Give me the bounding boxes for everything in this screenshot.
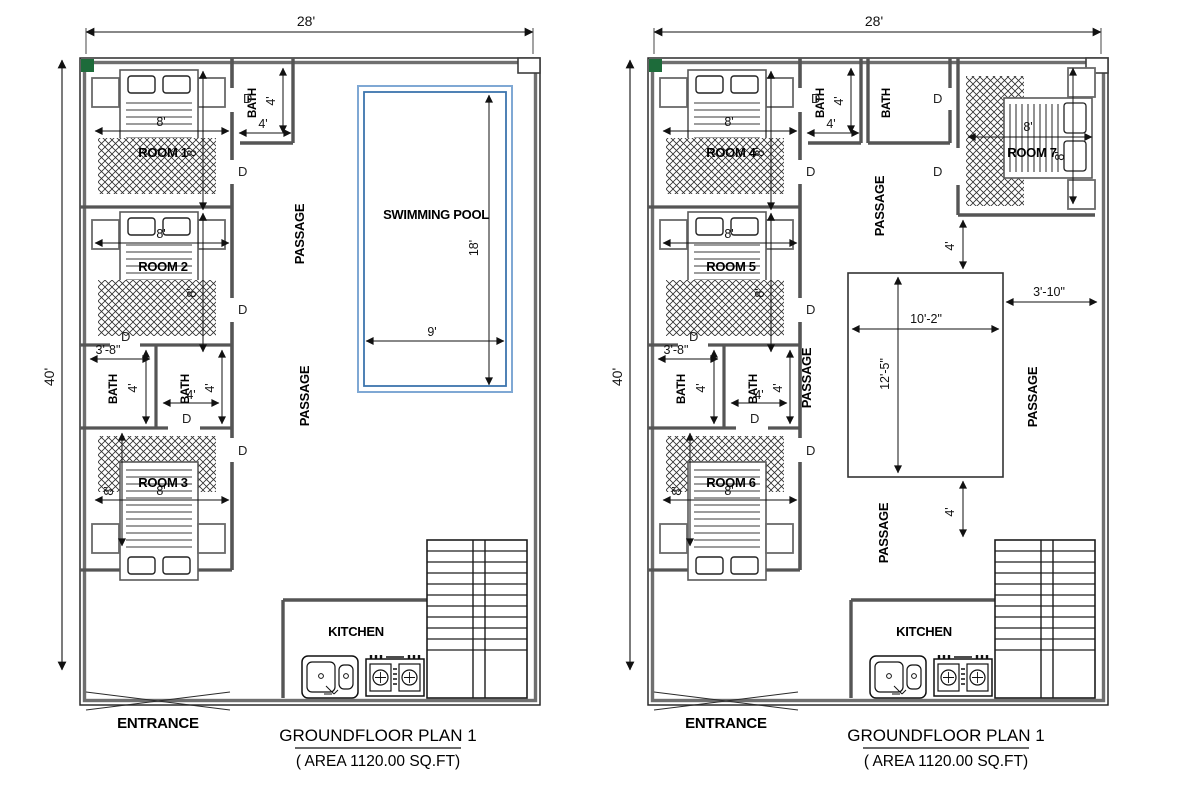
room-label: ROOM 5 xyxy=(706,259,756,274)
court-height-dim: 12'-5" xyxy=(878,358,892,390)
courtyard: 10'-2" 12'-5" 4' 4' 3'-10" xyxy=(848,220,1097,537)
passage-label: PASSAGE xyxy=(1025,366,1040,427)
pool-width-dim: 9' xyxy=(427,325,436,339)
plan-title: GROUNDFLOOR PLAN 1 xyxy=(847,726,1044,745)
pool-label: SWIMMING POOL xyxy=(383,207,489,222)
plan-area: ( AREA 1120.00 SQ.FT) xyxy=(296,753,460,770)
passage-label: PASSAGE xyxy=(876,502,891,563)
gap-dim: 4' xyxy=(943,241,957,250)
room-label: ROOM 6 xyxy=(706,475,756,490)
pool-length-dim: 18' xyxy=(467,240,481,256)
title-block: GROUNDFLOOR PLAN 1 ( AREA 1120.00 SQ.FT) xyxy=(279,726,476,770)
side-offset-dim: 3'-10" xyxy=(1033,285,1065,299)
door-label: D xyxy=(933,91,942,106)
room-label: ROOM 1 xyxy=(138,145,188,160)
bed-width-dim: 8' xyxy=(1023,120,1032,134)
plan2: ROOM 4 ROOM 5 ROOM 6 BATH D D 8' 8' ROOM… xyxy=(609,13,1108,770)
plan-title: GROUNDFLOOR PLAN 1 xyxy=(279,726,476,745)
bath-2: BATH D D xyxy=(868,58,950,179)
plan-area: ( AREA 1120.00 SQ.FT) xyxy=(864,753,1028,770)
plan1: ROOM 1 ROOM 2 ROOM 3 PASSAGE PASSAGE SWI… xyxy=(41,13,540,770)
gap-dim: 4' xyxy=(943,507,957,516)
room-label: ROOM 7 xyxy=(1007,145,1057,160)
court-width-dim: 10'-2" xyxy=(910,312,942,326)
passage-label: PASSAGE xyxy=(872,175,887,236)
floor-plan-sheet: 28' 40' 8' 8' xyxy=(0,0,1181,785)
room-label: ROOM 3 xyxy=(138,475,188,490)
passage-label: PASSAGE xyxy=(292,203,307,264)
bath-label: BATH xyxy=(881,88,893,118)
room-7: 8' 8' ROOM 7 xyxy=(958,58,1095,215)
title-block: GROUNDFLOOR PLAN 1 ( AREA 1120.00 SQ.FT) xyxy=(847,726,1044,770)
swimming-pool: SWIMMING POOL 18' 9' xyxy=(358,86,512,392)
room-label: ROOM 4 xyxy=(706,145,757,160)
room-label: ROOM 2 xyxy=(138,259,188,274)
passage-label: PASSAGE xyxy=(297,365,312,426)
passage-label: PASSAGE xyxy=(799,347,814,408)
door-label: D xyxy=(933,164,942,179)
cad-canvas: 28' 40' 8' 8' xyxy=(0,0,1181,785)
